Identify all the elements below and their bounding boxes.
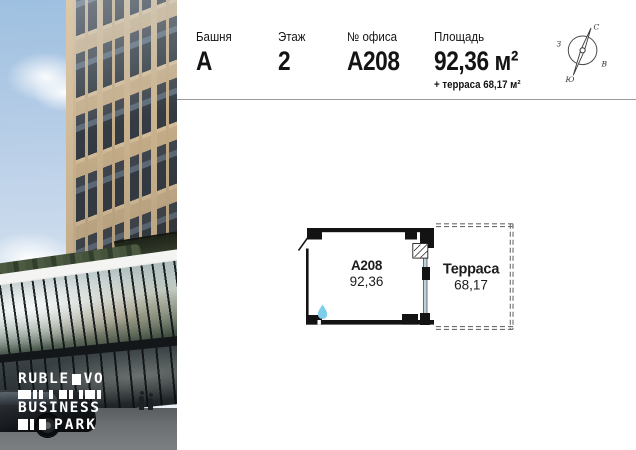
spec-terrace-area: + терраса 68,17 м² xyxy=(434,79,522,91)
logo-barcode-row xyxy=(18,419,46,430)
compass-east-label: В xyxy=(601,60,608,69)
logo-text-ruble: RUBLE xyxy=(18,372,70,387)
page: RUBLEVO BUSINESS PARK Башня А Этаж 2 № о… xyxy=(0,0,636,450)
spec-tower-value: А xyxy=(196,48,229,75)
spec-floor-value: 2 xyxy=(278,48,303,75)
spec-area-label: Площадь xyxy=(434,30,526,44)
spec-area-value: 92,36 м² xyxy=(434,48,518,75)
pedestrian xyxy=(139,396,144,410)
terrace-area-label: 68,17 xyxy=(454,278,488,293)
logo-text-vo: VO xyxy=(84,372,105,387)
spec-area: Площадь 92,36 м² + терраса 68,17 м² xyxy=(434,30,534,91)
spec-tower-label: Башня xyxy=(196,30,232,44)
room-number-label: А208 xyxy=(351,258,383,273)
tower-corner-pilaster xyxy=(66,0,73,292)
building-photo: RUBLEVO BUSINESS PARK xyxy=(0,0,177,450)
pedestrian xyxy=(148,398,153,410)
shaft-hatch-box xyxy=(413,244,428,259)
compass-icon: С Ю З В xyxy=(549,22,615,88)
header-divider xyxy=(177,99,636,100)
rublevo-business-park-logo: RUBLEVO BUSINESS PARK xyxy=(18,372,104,431)
terrace-name-label: Терраса xyxy=(443,262,500,278)
wall-notch xyxy=(318,320,321,325)
room-area-label: 92,36 xyxy=(350,274,384,289)
floor-plan: А208 92,36 Терраса 68,17 xyxy=(290,210,530,345)
compass-west-label: З xyxy=(557,40,562,49)
spec-office-value: А208 xyxy=(347,48,400,75)
spec-floor-label: Этаж xyxy=(278,30,305,44)
logo-barcode-row xyxy=(18,390,104,399)
logo-text-business: BUSINESS xyxy=(18,401,101,416)
compass-north-label: С xyxy=(594,23,600,32)
water-drop-icon xyxy=(318,305,327,320)
spec-floor: Этаж 2 xyxy=(278,30,308,75)
spec-office-label: № офиса xyxy=(347,30,405,44)
spec-tower: Башня А xyxy=(196,30,235,75)
logo-text-park: PARK xyxy=(54,417,97,433)
logo-block-glyph xyxy=(72,374,81,385)
logo-line-park: PARK xyxy=(18,419,104,431)
logo-line-rublevo: RUBLEVO xyxy=(18,372,104,387)
compass-south-label: Ю xyxy=(565,75,575,84)
spec-office-number: № офиса А208 xyxy=(347,30,410,75)
logo-line-business: BUSINESS xyxy=(18,401,104,416)
